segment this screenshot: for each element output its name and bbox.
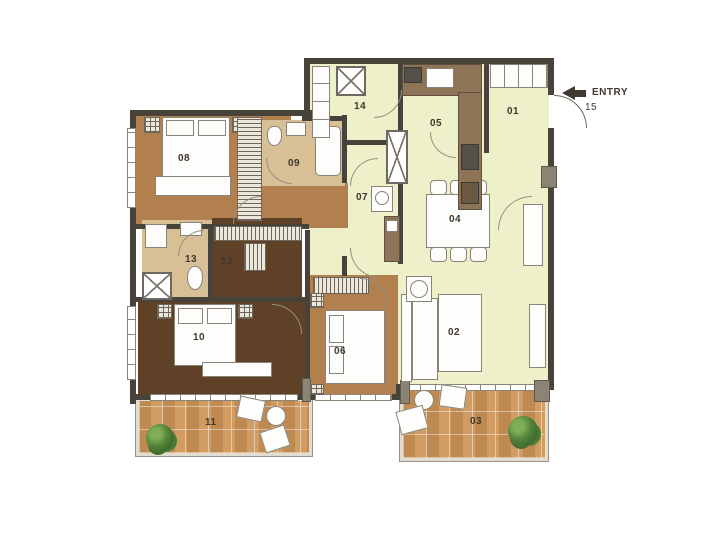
wall <box>130 110 312 116</box>
oven <box>461 144 479 170</box>
window <box>127 306 136 380</box>
room-label-01: 01 <box>507 106 519 117</box>
nightstand <box>310 384 324 395</box>
room-label-03: 03 <box>470 416 482 427</box>
chair <box>430 247 447 262</box>
room-label-11: 11 <box>205 417 217 428</box>
kitchen-sink <box>426 68 454 88</box>
window <box>150 394 298 401</box>
entry-arrow-tail <box>575 90 586 97</box>
entry-closet <box>490 64 548 88</box>
toilet <box>267 126 282 146</box>
toilet <box>187 266 203 290</box>
cooktop <box>404 67 422 83</box>
room-label-04: 04 <box>449 214 461 225</box>
room-label-13: 13 <box>185 254 197 265</box>
chair <box>450 247 467 262</box>
room-label-02: 02 <box>448 327 460 338</box>
tall-cabinet <box>312 66 330 138</box>
sofa-seat <box>412 298 438 380</box>
room-label-08: 08 <box>178 153 190 164</box>
appliance <box>461 182 479 204</box>
nightstand <box>310 293 324 308</box>
pillow <box>329 315 344 343</box>
chair <box>430 180 447 195</box>
window <box>315 394 392 401</box>
entry-arrow-icon <box>562 86 575 100</box>
floor-plan: ENTRY 15 01 02 03 04 05 06 07 08 09 10 1… <box>0 0 720 540</box>
room-label-06: 06 <box>334 346 346 357</box>
bench <box>155 176 231 196</box>
outdoor-chair <box>439 384 468 409</box>
wall <box>548 58 554 95</box>
pillar <box>541 166 557 188</box>
tv-unit <box>529 304 546 368</box>
room-label-09: 09 <box>288 158 300 169</box>
wall <box>342 256 347 276</box>
wall <box>304 58 310 116</box>
shower-unit <box>336 66 366 96</box>
pillow <box>198 120 226 136</box>
nightstand <box>157 304 172 319</box>
room-label-14: 14 <box>354 101 366 112</box>
duct-shaft <box>386 130 408 184</box>
entry-label: ENTRY <box>592 87 628 98</box>
bench <box>202 362 272 377</box>
plant <box>146 424 174 452</box>
chair <box>470 247 487 262</box>
shower <box>145 224 167 248</box>
pillow <box>178 308 203 324</box>
room-label-10: 10 <box>193 332 205 343</box>
room-label-05: 05 <box>430 118 442 129</box>
wall <box>305 230 310 400</box>
pillar <box>400 380 410 404</box>
sofa-back <box>401 294 412 382</box>
outdoor-table <box>266 406 286 426</box>
plant <box>508 416 538 446</box>
entry-number: 15 <box>585 102 597 113</box>
duct-shaft <box>142 272 172 300</box>
room-label-07: 07 <box>356 192 368 203</box>
wall <box>208 226 213 302</box>
wall <box>484 60 489 153</box>
utility-sink <box>386 220 398 232</box>
washer-drum <box>375 191 389 205</box>
sink <box>286 122 306 136</box>
pillow <box>166 120 194 136</box>
wardrobe <box>244 243 266 271</box>
nightstand <box>144 117 160 133</box>
window <box>127 128 136 208</box>
wardrobe <box>214 226 302 241</box>
pillar <box>534 380 550 402</box>
armchair-cushion <box>410 280 428 298</box>
room-label-12: 12 <box>221 256 233 267</box>
pillow <box>207 308 232 324</box>
nightstand <box>238 304 253 319</box>
wall <box>342 115 347 183</box>
